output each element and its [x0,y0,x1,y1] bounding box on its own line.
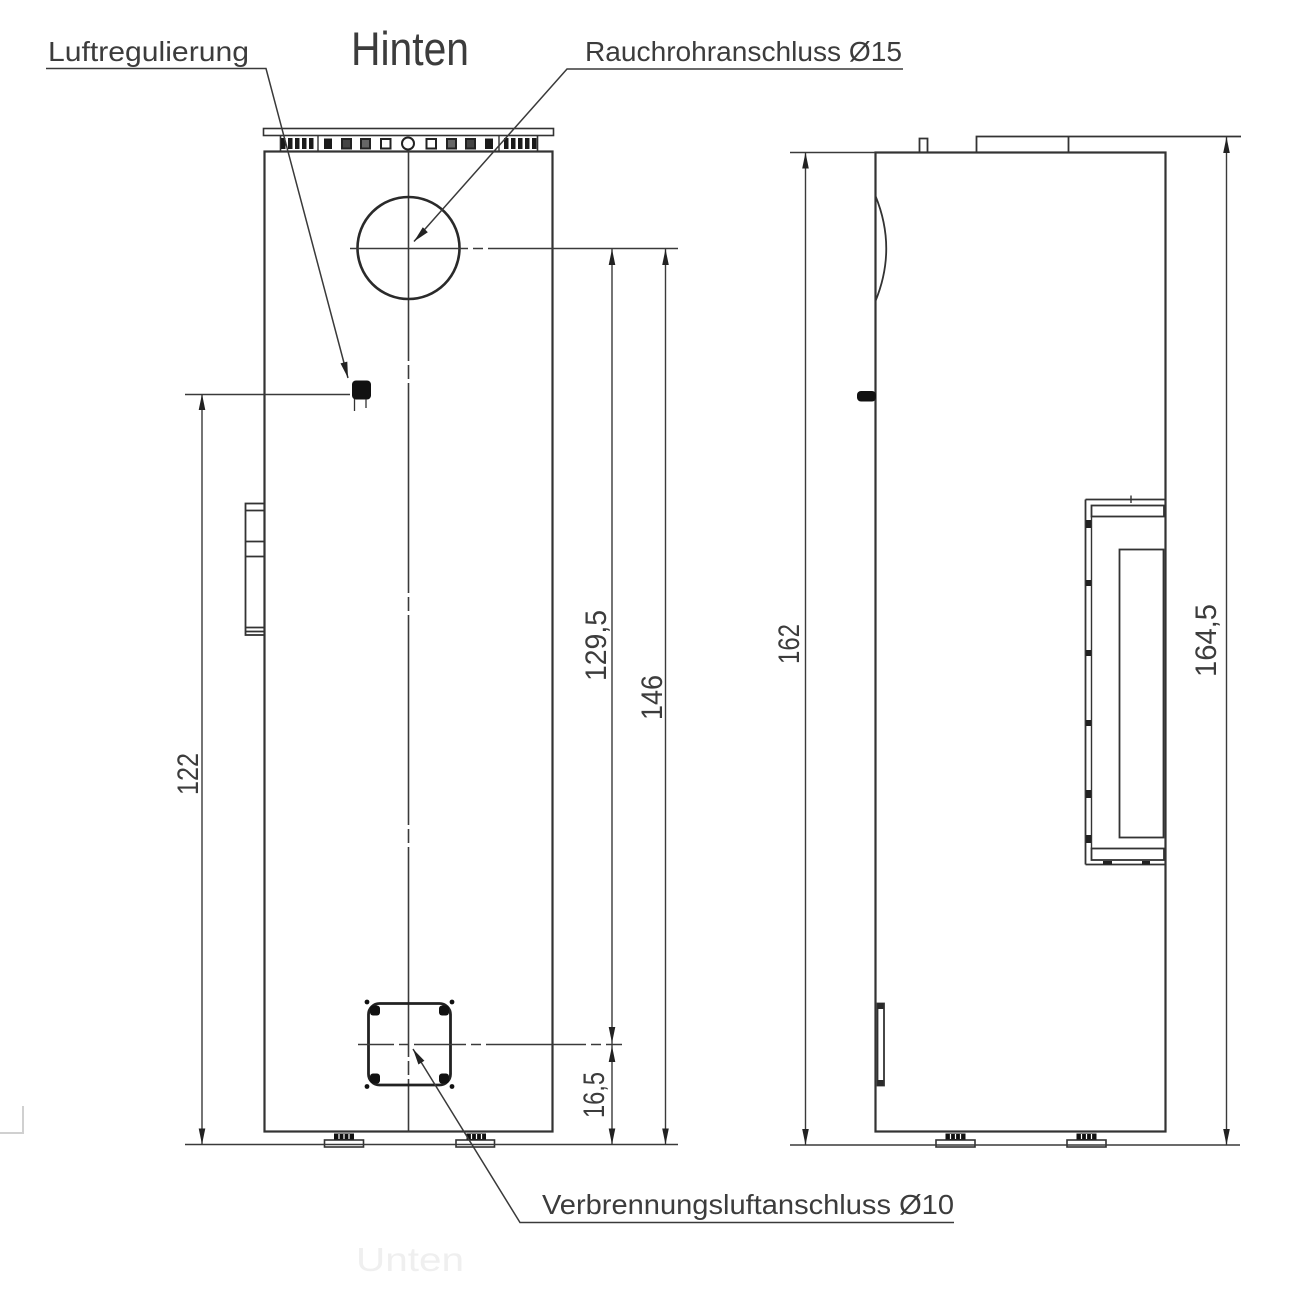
svg-text:16,5: 16,5 [578,1072,611,1118]
svg-text:162: 162 [773,624,806,664]
svg-text:Unten: Unten [356,1241,464,1278]
svg-text:122: 122 [172,753,205,795]
svg-text:Luftregulierung: Luftregulierung [48,36,249,67]
svg-text:Verbrennungsluftanschluss Ø10: Verbrennungsluftanschluss Ø10 [542,1189,954,1220]
svg-text:129,5: 129,5 [580,610,613,681]
svg-text:164,5: 164,5 [1190,604,1223,677]
svg-text:Hinten: Hinten [351,22,469,75]
svg-text:Rauchrohranschluss Ø15: Rauchrohranschluss Ø15 [585,36,902,67]
svg-text:146: 146 [636,675,669,720]
